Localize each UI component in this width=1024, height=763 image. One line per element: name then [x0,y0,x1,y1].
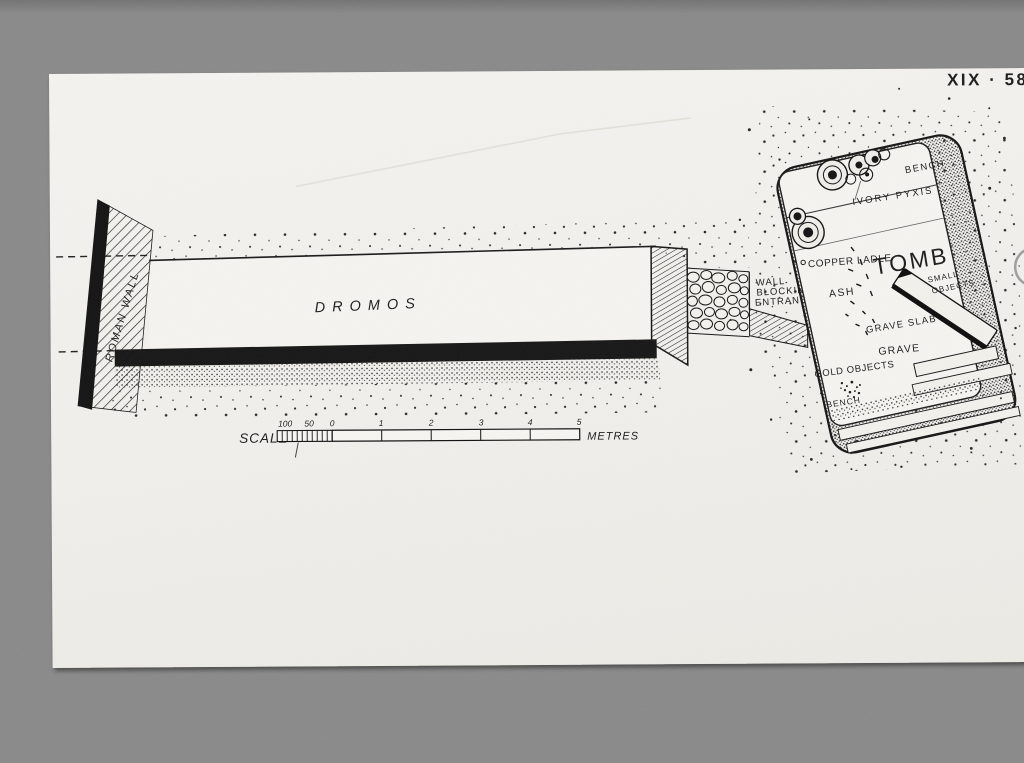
scale-tick-3: 3 [479,417,484,427]
dromos-passage [114,246,662,387]
background-shading [0,0,1024,14]
scale-tick-0: 0 [330,418,335,428]
wall-blocking-entrance [687,268,749,337]
scale-tick-5: 5 [577,417,582,427]
scale-tick-1: 1 [379,418,384,428]
tomb-plan-drawing: XIX · 58 ROMAN WALL DROMOS [49,68,1024,668]
scale-bar: SCALE 100 50 0 [239,416,639,457]
scale-tick-4: 4 [528,417,533,427]
photo-paper: XIX · 58 ROMAN WALL DROMOS [49,68,1024,668]
photograph-of-tomb-plan: XIX · 58 ROMAN WALL DROMOS [0,0,1024,763]
scale-tick-50: 50 [304,418,314,428]
plate-number: XIX · 58 [947,70,1024,89]
scale-tick-100: 100 [278,419,293,429]
scale-units: METRES [587,430,639,442]
scale-tick-2: 2 [428,418,434,428]
photo-crease [295,118,690,186]
